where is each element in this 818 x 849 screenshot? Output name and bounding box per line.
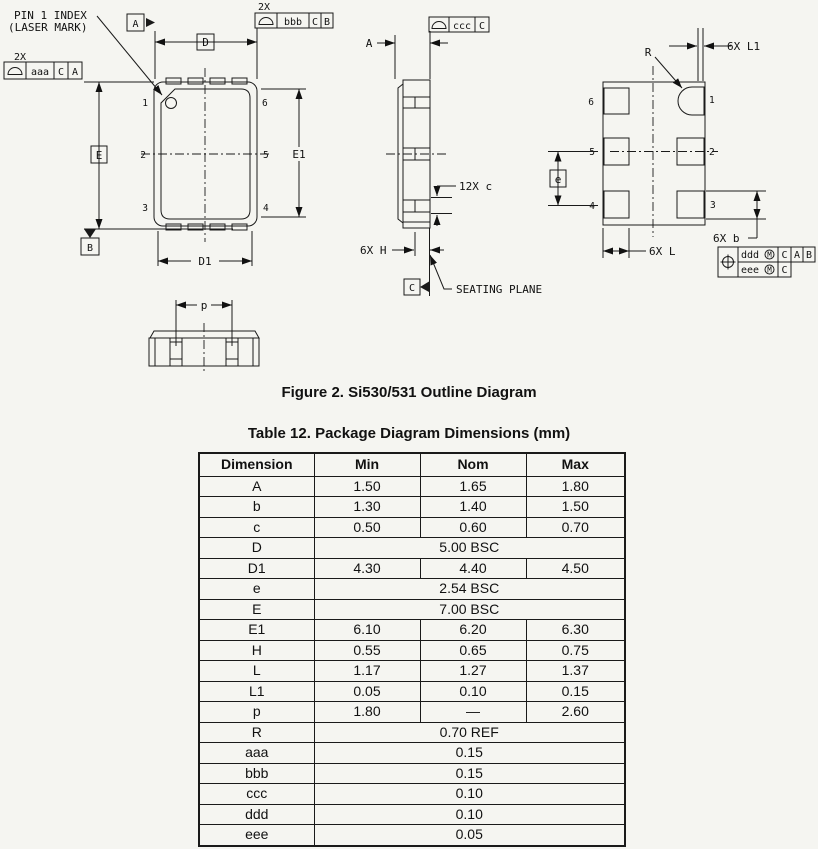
table-row: E7.00 BSC bbox=[199, 599, 625, 620]
qty-2x-top: 2X bbox=[258, 2, 270, 13]
land-pin-3: 3 bbox=[710, 200, 716, 211]
qty-2x-left: 2X bbox=[14, 52, 26, 63]
table-row: H0.550.650.75 bbox=[199, 640, 625, 661]
fcf-aaa: aaa C A bbox=[4, 62, 82, 79]
table-row: A1.501.651.80 bbox=[199, 476, 625, 497]
land-pin-4: 4 bbox=[589, 201, 595, 212]
column-header: Max bbox=[526, 453, 625, 476]
cell-min: 1.30 bbox=[314, 497, 420, 518]
cell-dimension: E bbox=[199, 599, 314, 620]
laser-mark-label: (LASER MARK) bbox=[8, 21, 87, 34]
cell-max: 0.15 bbox=[526, 681, 625, 702]
land-pad-1-rounded bbox=[678, 87, 704, 115]
position-symbol-icon bbox=[721, 255, 736, 270]
datum-a-triangle bbox=[146, 18, 155, 27]
cell-max: 4.50 bbox=[526, 558, 625, 579]
cell-nom: 6.20 bbox=[420, 620, 526, 641]
cell-dimension: ccc bbox=[199, 784, 314, 805]
cell-min: 4.30 bbox=[314, 558, 420, 579]
dim-label-e: e bbox=[555, 173, 562, 186]
cell-dimension: D1 bbox=[199, 558, 314, 579]
svg-text:C: C bbox=[479, 21, 485, 32]
cell-min: 0.50 bbox=[314, 517, 420, 538]
table-header-row: DimensionMinNomMax bbox=[199, 453, 625, 476]
cell-min: 0.55 bbox=[314, 640, 420, 661]
cell-span-value: 0.15 bbox=[314, 763, 625, 784]
front-view: D A PIN 1 INDEX (LASER MARK) 2X aaa C A … bbox=[4, 2, 333, 268]
dim-label-R: R bbox=[645, 46, 652, 59]
bottom-view: p bbox=[149, 298, 259, 373]
cell-dimension: L bbox=[199, 661, 314, 682]
cell-dimension: c bbox=[199, 517, 314, 538]
datum-c-label: C bbox=[409, 283, 415, 294]
figure-caption: Figure 2. Si530/531 Outline Diagram bbox=[0, 384, 818, 401]
svg-text:B: B bbox=[324, 17, 330, 28]
dim-label-6x-L1: 6X L1 bbox=[727, 40, 760, 53]
cell-dimension: D bbox=[199, 538, 314, 559]
svg-text:ddd: ddd bbox=[741, 250, 759, 261]
datum-b-label: B bbox=[87, 243, 93, 254]
dim-label-E: E bbox=[96, 149, 103, 162]
cell-span-value: 7.00 BSC bbox=[314, 599, 625, 620]
cell-dimension: bbb bbox=[199, 763, 314, 784]
dimensions-table: DimensionMinNomMax A1.501.651.80b1.301.4… bbox=[198, 452, 626, 847]
cell-dimension: L1 bbox=[199, 681, 314, 702]
cell-max: 2.60 bbox=[526, 702, 625, 723]
dim-label-6x-b: 6X b bbox=[713, 232, 740, 245]
cell-nom: 0.60 bbox=[420, 517, 526, 538]
land-pin-1: 1 bbox=[709, 95, 715, 106]
svg-text:M: M bbox=[767, 251, 772, 260]
table-row: ccc0.10 bbox=[199, 784, 625, 805]
svg-text:B: B bbox=[806, 250, 812, 261]
table-row: E16.106.206.30 bbox=[199, 620, 625, 641]
cell-dimension: e bbox=[199, 579, 314, 600]
cell-dimension: H bbox=[199, 640, 314, 661]
cell-nom: 1.65 bbox=[420, 476, 526, 497]
svg-text:eee: eee bbox=[741, 265, 759, 276]
fcf-ccc: ccc C bbox=[429, 17, 489, 32]
datum-b-triangle bbox=[84, 229, 96, 238]
cell-dimension: E1 bbox=[199, 620, 314, 641]
side-view: A ccc C bbox=[360, 17, 542, 296]
table-title: Table 12. Package Diagram Dimensions (mm… bbox=[0, 425, 818, 442]
cell-nom: 0.10 bbox=[420, 681, 526, 702]
cell-span-value: 0.10 bbox=[314, 784, 625, 805]
table-row: e2.54 BSC bbox=[199, 579, 625, 600]
dim-label-p: p bbox=[201, 299, 208, 312]
cell-span-value: 5.00 BSC bbox=[314, 538, 625, 559]
table-row: R0.70 REF bbox=[199, 722, 625, 743]
land-pad-3 bbox=[677, 191, 704, 218]
table-row: L10.050.100.15 bbox=[199, 681, 625, 702]
svg-text:ccc: ccc bbox=[453, 21, 471, 32]
cell-dimension: ddd bbox=[199, 804, 314, 825]
table-row: ddd0.10 bbox=[199, 804, 625, 825]
column-header: Nom bbox=[420, 453, 526, 476]
svg-text:C: C bbox=[781, 265, 787, 276]
svg-text:C: C bbox=[781, 250, 787, 261]
cell-dimension: p bbox=[199, 702, 314, 723]
land-pin-2: 2 bbox=[709, 147, 715, 158]
table-row: bbb0.15 bbox=[199, 763, 625, 784]
dim-label-6x-L: 6X L bbox=[649, 245, 676, 258]
pin1-index-mark bbox=[166, 98, 177, 109]
profile-surface-icon bbox=[8, 68, 22, 75]
table-row: D5.00 BSC bbox=[199, 538, 625, 559]
cell-max: 0.75 bbox=[526, 640, 625, 661]
cell-nom: 1.40 bbox=[420, 497, 526, 518]
cell-nom: — bbox=[420, 702, 526, 723]
fcf-position: ddd M C A B eee M C bbox=[718, 247, 815, 277]
datum-a-label: A bbox=[132, 19, 138, 30]
cell-nom: 1.27 bbox=[420, 661, 526, 682]
front-pin-5: 5 bbox=[263, 150, 269, 161]
svg-text:aaa: aaa bbox=[31, 67, 49, 78]
cell-dimension: R bbox=[199, 722, 314, 743]
svg-text:bbb: bbb bbox=[284, 17, 302, 28]
dim-label-A: A bbox=[366, 37, 373, 50]
cell-span-value: 0.05 bbox=[314, 825, 625, 846]
svg-text:C: C bbox=[312, 17, 318, 28]
table-row: c0.500.600.70 bbox=[199, 517, 625, 538]
table-body: A1.501.651.80b1.301.401.50c0.500.600.70D… bbox=[199, 476, 625, 846]
front-pin-3: 3 bbox=[142, 203, 148, 214]
cell-span-value: 0.70 REF bbox=[314, 722, 625, 743]
dim-label-12x-c: 12X c bbox=[459, 180, 492, 193]
svg-text:M: M bbox=[767, 266, 772, 275]
dim-label-D: D bbox=[202, 36, 209, 49]
table-row: p1.80—2.60 bbox=[199, 702, 625, 723]
land-pin-5: 5 bbox=[589, 147, 595, 158]
front-pin-2: 2 bbox=[140, 150, 146, 161]
dim-label-D1: D1 bbox=[198, 255, 211, 268]
table-row: eee0.05 bbox=[199, 825, 625, 846]
profile-surface-icon bbox=[432, 22, 446, 29]
land-pad-4 bbox=[604, 191, 629, 218]
land-pad-6 bbox=[604, 88, 629, 114]
fcf-bbb: bbb C B bbox=[255, 13, 333, 28]
cell-dimension: b bbox=[199, 497, 314, 518]
cell-nom: 4.40 bbox=[420, 558, 526, 579]
side-pad bbox=[415, 97, 430, 108]
cell-min: 1.50 bbox=[314, 476, 420, 497]
datum-c-triangle bbox=[420, 282, 429, 293]
table-header: DimensionMinNomMax bbox=[199, 453, 625, 476]
cell-max: 1.80 bbox=[526, 476, 625, 497]
cell-span-value: 0.15 bbox=[314, 743, 625, 764]
svg-text:C: C bbox=[58, 67, 64, 78]
cell-min: 1.17 bbox=[314, 661, 420, 682]
cell-span-value: 2.54 BSC bbox=[314, 579, 625, 600]
cell-dimension: A bbox=[199, 476, 314, 497]
cell-max: 0.70 bbox=[526, 517, 625, 538]
cell-min: 6.10 bbox=[314, 620, 420, 641]
dim-label-E1: E1 bbox=[292, 148, 305, 161]
outline-diagram: D A PIN 1 INDEX (LASER MARK) 2X aaa C A … bbox=[0, 0, 818, 382]
front-pin-1: 1 bbox=[142, 98, 148, 109]
land-outline bbox=[603, 82, 705, 225]
table-row: D14.304.404.50 bbox=[199, 558, 625, 579]
front-pin-6: 6 bbox=[262, 98, 268, 109]
table-row: aaa0.15 bbox=[199, 743, 625, 764]
cell-dimension: eee bbox=[199, 825, 314, 846]
cell-dimension: aaa bbox=[199, 743, 314, 764]
land-pin-6: 6 bbox=[588, 97, 594, 108]
cell-min: 0.05 bbox=[314, 681, 420, 702]
svg-text:A: A bbox=[794, 250, 800, 261]
table-row: L1.171.271.37 bbox=[199, 661, 625, 682]
cell-min: 1.80 bbox=[314, 702, 420, 723]
cell-max: 1.37 bbox=[526, 661, 625, 682]
dim-label-6x-H: 6X H bbox=[360, 244, 387, 257]
profile-surface-icon bbox=[259, 18, 273, 25]
land-view: 6 5 4 1 2 3 R 6X L1 e 6X L 6X b bbox=[548, 28, 815, 277]
cell-max: 1.50 bbox=[526, 497, 625, 518]
column-header: Min bbox=[314, 453, 420, 476]
seating-plane-label: SEATING PLANE bbox=[456, 283, 542, 296]
column-header: Dimension bbox=[199, 453, 314, 476]
cell-nom: 0.65 bbox=[420, 640, 526, 661]
svg-text:A: A bbox=[72, 67, 78, 78]
table-row: b1.301.401.50 bbox=[199, 497, 625, 518]
front-pin-4: 4 bbox=[263, 203, 269, 214]
side-pad bbox=[415, 200, 430, 212]
cell-span-value: 0.10 bbox=[314, 804, 625, 825]
cell-max: 6.30 bbox=[526, 620, 625, 641]
